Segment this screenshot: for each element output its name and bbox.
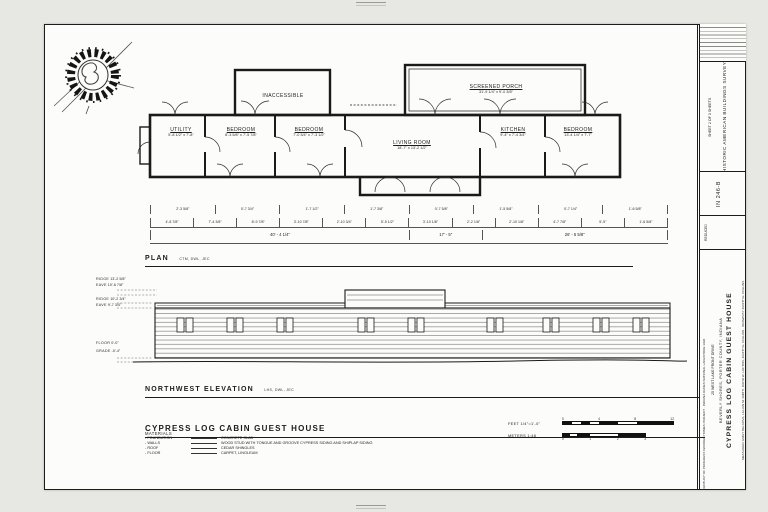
title-strip-notes-box (700, 24, 746, 62)
level-floor: FLOOR 0'-0" (96, 341, 119, 345)
drawing-sheet-canvas: UTILITY 5'-8 1/2" x 7'-8" BEDROOM 8'-3 5… (0, 0, 768, 512)
room-label-screened-porch: SCREENED PORCH 31'-9 1/4" x 9'-0 3/8" (470, 84, 523, 95)
plan-dimension-totals: 40' - 4 1/4" 17' - 5" 26' - 5 5/8" (150, 230, 668, 240)
main-title-box: MEASURED: EMILY BELKOVA, LILLIAN M. SMIT… (700, 250, 746, 490)
plan-label: PLAN (145, 255, 169, 262)
materials-list: MATERIALS - FOUNDATION CONCRETE SLAB - W… (145, 431, 372, 456)
elevation-section-label: NORTHWEST ELEVATION LHS, DWL, JEC (145, 378, 700, 398)
level-ridge-lower: RIDGE 10'-2 3/4" (96, 297, 126, 301)
material-floor: - FLOOR CARPET, LINOLEUM (145, 451, 372, 456)
top-registration-mark (356, 2, 386, 6)
level-ridge-upper: RIDGE 13'-2 5/8" (96, 277, 126, 281)
floor-plan-drawing (135, 52, 635, 202)
habs-agency-name: HISTORIC AMERICAN BUILDINGS SURVEY (722, 62, 727, 172)
plan-label-note: CTM, DWL, JEC (179, 257, 209, 261)
project-credit: CENTURY OF PROGRESS WOODED HOMES PROJECT… (702, 250, 706, 490)
room-label-living-room: LIVING ROOM 18'-7" x 13'-2 1/2" (393, 140, 431, 151)
habs-agency-box: HISTORIC AMERICAN BUILDINGS SURVEY SHEET… (700, 62, 746, 172)
elevation-label: NORTHWEST ELEVATION (145, 386, 254, 393)
title-strip: HISTORIC AMERICAN BUILDINGS SURVEY SHEET… (699, 24, 746, 490)
room-label-bedroom-2: BEDROOM 7'-0 3/4" x 7'-3 1/2" (293, 127, 325, 138)
titleblock-subtitle: BEVERLY SHORES, PORTER COUNTY, INDIANA (719, 250, 723, 490)
feet-scale-label: FEET 1/4"=1'-0" (508, 421, 540, 426)
room-label-utility: UTILITY 5'-8 1/2" x 7'-8" (168, 127, 193, 138)
elevation-label-note: LHS, DWL, JEC (264, 388, 294, 392)
room-label-bedroom-3: BEDROOM 13'-4 1/4" x 7'-7" (564, 127, 593, 138)
compass-rose (48, 28, 138, 123)
level-eave-upper: EAVE 10'-6 7/8" (96, 283, 123, 287)
survey-number-box: IN 246-B (700, 172, 746, 216)
room-label-kitchen: KITCHEN 9'-4" x 7'-4 3/4" (500, 127, 525, 138)
bottom-registration-mark (356, 505, 386, 509)
meters-scale-label: METERS 1:48 (508, 433, 536, 438)
room-label-inaccessible: INACCESSIBLE (262, 93, 303, 99)
elevation-drawing (115, 270, 695, 375)
level-eave-lower: EAVE 9'-7 3/4" (96, 303, 121, 307)
feet-scale-bar: 0 4 8 12 (562, 417, 674, 425)
measured-credit: MEASURED: EMILY BELKOVA, LILLIAN M. SMIT… (741, 250, 745, 490)
reduced-box: REDUCED (700, 216, 746, 250)
survey-number: IN 246-B (716, 172, 722, 216)
habs-sheet-line: SHEET 2 OF 3 SHEETS (708, 62, 712, 172)
meters-scale-bar: 0 1 2 3 (562, 433, 646, 441)
plan-dimension-row-lower: 4'-8 7/8" 7'-4 3/8" 8'-9 7/8" 3'-10 7/8"… (150, 218, 668, 228)
titleblock-title: CYPRESS LOG CABIN GUEST HOUSE (726, 250, 733, 490)
titleblock-address: 25 WEST LAKE FRONT DRIVE (711, 250, 715, 490)
plan-overall-dimension-line (150, 243, 668, 244)
level-grade: GRADE -0'-4" (96, 349, 120, 353)
plan-section-label: PLAN CTM, DWL, JEC (145, 247, 633, 267)
reduced-label: REDUCED (704, 216, 708, 250)
plan-dimension-row-upper: 2'-3 5/8" 0'-7 3/4" 1'-7 1/2" 1'-7 3/8" … (150, 205, 668, 214)
room-label-bedroom-1: BEDROOM 8'-3 5/8" x 7'-5 7/8" (225, 127, 257, 138)
